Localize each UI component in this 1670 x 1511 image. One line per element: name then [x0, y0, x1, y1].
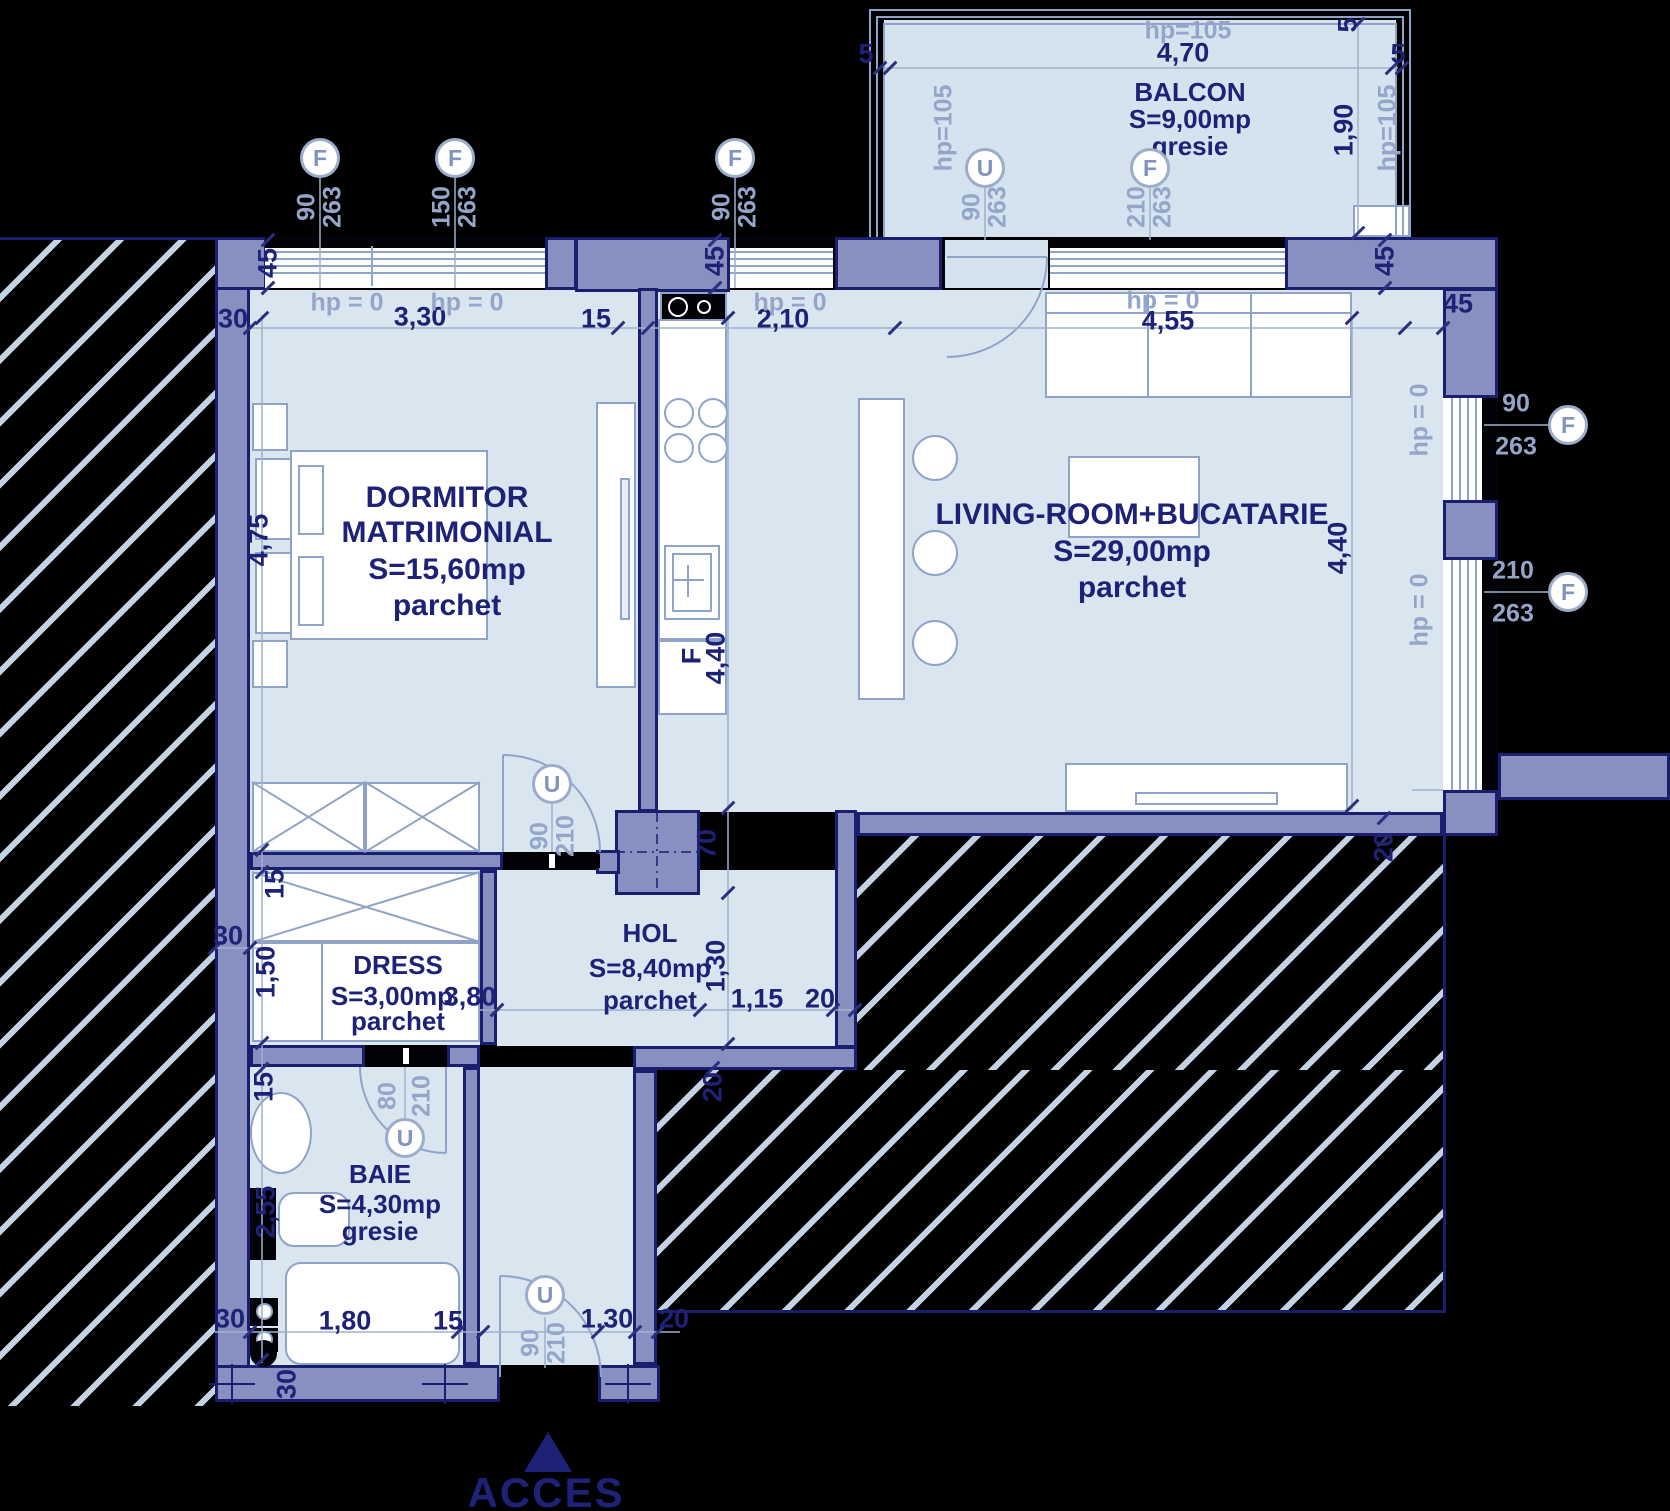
size-263: 263	[1495, 435, 1537, 460]
dim-380: 3,80	[444, 984, 497, 1011]
room-name-dress: DRESS	[353, 952, 443, 978]
size-210: 210	[554, 815, 579, 857]
room-name-dormitor-2: MATRIMONIAL	[341, 518, 552, 548]
door-marker: U	[525, 1275, 565, 1315]
room-area-baie: S=4,30mp	[319, 1191, 441, 1217]
window-marker: F	[715, 138, 755, 178]
dim-20-corr: 20	[700, 1072, 727, 1102]
pillow-1	[298, 465, 324, 535]
hp-label: hp = 0	[311, 291, 384, 316]
size-263: 263	[1492, 602, 1534, 627]
bar-stool-1	[912, 435, 958, 481]
dim-5-corner: 5	[1335, 17, 1362, 32]
dim-5-left: 5	[858, 41, 873, 68]
sofa-divider-2	[1250, 294, 1252, 396]
dim-45-a: 45	[255, 248, 282, 278]
kitchen-sink-basin	[672, 553, 712, 612]
hatch-left	[0, 237, 215, 1406]
room-name-dormitor-1: DORMITOR	[366, 483, 529, 513]
window-marker: F	[1548, 405, 1588, 445]
wall-right-mid	[1443, 500, 1498, 560]
size-90: 90	[528, 822, 553, 850]
dim-5-right: 5	[1390, 41, 1405, 68]
bath-fixture-3	[250, 1340, 277, 1367]
wall-living-bottom	[857, 812, 1443, 836]
size-80: 80	[376, 1082, 401, 1110]
tv-bedroom	[620, 478, 630, 620]
wall-pillar	[615, 810, 700, 895]
size-263: 263	[736, 186, 761, 228]
size-90: 90	[960, 193, 985, 221]
bar-stool-2	[912, 530, 958, 576]
dim-15-top: 15	[581, 306, 611, 333]
size-263: 263	[1151, 186, 1176, 228]
stove-burner-1	[664, 398, 694, 428]
wall-bath-top-right	[447, 1045, 480, 1067]
window-living-top	[1050, 248, 1285, 288]
window-living-right-2	[1443, 560, 1482, 790]
size-90: 90	[519, 1329, 544, 1357]
dim-190: 1,90	[1331, 104, 1358, 157]
dim-130-hall: 1,30	[703, 940, 730, 993]
wall-bath-corridor	[463, 1067, 480, 1365]
wall-bedroom-kitchen	[638, 288, 658, 812]
size-210: 210	[545, 1322, 570, 1364]
dim-150: 1,50	[253, 946, 280, 999]
hob-burner-1	[668, 297, 688, 317]
size-263: 263	[456, 186, 481, 228]
door-marker: U	[385, 1118, 425, 1158]
bath-door-gap	[403, 1048, 409, 1064]
size-90: 90	[710, 193, 735, 221]
dim-30-top: 30	[218, 306, 248, 333]
dim-180: 1,80	[319, 1308, 372, 1335]
dim-475: 4,75	[246, 514, 273, 567]
dim-45-b: 45	[702, 246, 729, 276]
stove-burner-4	[698, 433, 728, 463]
size-263: 263	[321, 186, 346, 228]
dim-115: 1,15	[731, 986, 784, 1013]
window-recess-3	[1050, 237, 1285, 248]
dim-20-hall: 20	[805, 986, 835, 1013]
pillow-2	[298, 556, 324, 626]
room-area-hol: S=8,40mp	[589, 955, 711, 981]
room-name-hol: HOL	[623, 920, 678, 946]
size-90: 90	[295, 193, 320, 221]
wall-dress-hall	[480, 870, 497, 1045]
size-210: 210	[410, 1075, 435, 1117]
dim-130-entry: 1,30	[581, 1306, 634, 1333]
tv-living	[1135, 792, 1278, 805]
size-210: 210	[1125, 186, 1150, 228]
hatch-right-lower	[657, 1070, 1446, 1313]
hp-label-balcony: hp=105	[932, 85, 957, 172]
window-marker: F	[1130, 148, 1170, 188]
stove-burner-2	[698, 398, 728, 428]
hp-label: hp = 0	[431, 291, 504, 316]
dim-45-right: 45	[1443, 291, 1473, 318]
bar-stool-3	[912, 620, 958, 666]
window-living-right-1	[1443, 398, 1482, 500]
bath-sink	[250, 1092, 312, 1174]
dim-15-left: 15	[262, 869, 289, 899]
window-marker: F	[300, 138, 340, 178]
wall-corridor-top	[633, 1046, 857, 1070]
wardrobe-2	[365, 782, 480, 852]
hp-label-balcony: hp=105	[1145, 19, 1232, 44]
door-marker: U	[532, 764, 572, 804]
wall-section-mark	[444, 1364, 446, 1404]
dim-30-wall: 30	[274, 1369, 301, 1399]
room-name-baie: BAIE	[349, 1161, 411, 1187]
wall-section-mark	[231, 1364, 233, 1404]
room-name-balcon: BALCON	[1134, 79, 1245, 105]
window-recess-5	[1482, 560, 1498, 790]
dim-440-kitchen: 4,40	[703, 632, 730, 685]
wall-right-corner	[1443, 790, 1498, 836]
stove-burner-3	[664, 433, 694, 463]
room-finish-baie: gresie	[342, 1218, 419, 1244]
window-marker: F	[1548, 572, 1588, 612]
balcony-door-opening	[945, 240, 1048, 288]
wall-corridor-right	[633, 1070, 657, 1365]
dim-20-right: 20	[1371, 832, 1398, 862]
wall-top-post	[545, 237, 577, 290]
tv-unit-bedroom	[596, 402, 636, 688]
room-area-balcon: S=9,00mp	[1129, 106, 1251, 132]
size-263: 263	[986, 186, 1011, 228]
window-kitchen	[730, 248, 833, 288]
bath-fixture-1-circle	[256, 1303, 273, 1320]
dim-15-bottom: 15	[433, 1308, 463, 1335]
room-finish-living: parchet	[1078, 573, 1186, 603]
balcony-threshold	[1353, 205, 1410, 237]
hp-label: hp = 0	[1127, 289, 1200, 314]
window-bedroom	[265, 248, 545, 288]
wall-left-outer	[215, 237, 250, 1402]
dim-255: 2,55	[253, 1186, 280, 1239]
room-name-living: LIVING-ROOM+BUCATARIE	[935, 500, 1328, 530]
hp-label: hp = 0	[1408, 574, 1433, 647]
size-150: 150	[430, 186, 455, 228]
door-marker: U	[965, 148, 1005, 188]
room-finish-dormitor: parchet	[393, 591, 501, 621]
room-area-living: S=29,00mp	[1053, 537, 1211, 567]
wall-section-mark	[627, 1364, 629, 1404]
hp-label: hp = 0	[1408, 384, 1433, 457]
window-recess-1	[265, 237, 545, 248]
nightstand-top	[252, 403, 288, 451]
wall-bedroom-dress	[250, 852, 503, 870]
dim-70: 70	[694, 829, 721, 859]
wall-top-mid	[835, 237, 942, 290]
room-area-dormitor: S=15,60mp	[368, 555, 526, 585]
dim-30-bottom: 30	[215, 1306, 245, 1333]
entry-arrow-icon	[524, 1432, 572, 1472]
dim-440-living: 4,40	[1325, 522, 1352, 575]
size-90: 90	[1502, 392, 1530, 417]
hp-label-balcony: hp=105	[1376, 85, 1401, 172]
hatch-right-upper	[857, 836, 1446, 1070]
size-210: 210	[1492, 559, 1534, 584]
window-marker: F	[435, 138, 475, 178]
wall-ext-band-right	[1498, 753, 1670, 800]
window-recess-2	[730, 237, 833, 248]
room-finish-dress: parchet	[351, 1008, 445, 1034]
hob-burner-2	[697, 300, 711, 314]
dim-30-mid: 30	[213, 923, 243, 950]
dim-15-bath: 15	[251, 1072, 278, 1102]
floor-plan: DORMITOR MATRIMONIAL S=15,60mp parchet L…	[0, 0, 1670, 1511]
hp-label: hp = 0	[754, 291, 827, 316]
island-counter	[858, 398, 905, 700]
dim-45-c: 45	[1372, 246, 1399, 276]
entry-label: ACCES	[467, 1472, 624, 1511]
dim-20-entry: 20	[659, 1306, 689, 1333]
room-finish-hol: parchet	[603, 987, 697, 1013]
nightstand-bottom	[252, 640, 288, 688]
wardrobe-1	[252, 782, 365, 852]
